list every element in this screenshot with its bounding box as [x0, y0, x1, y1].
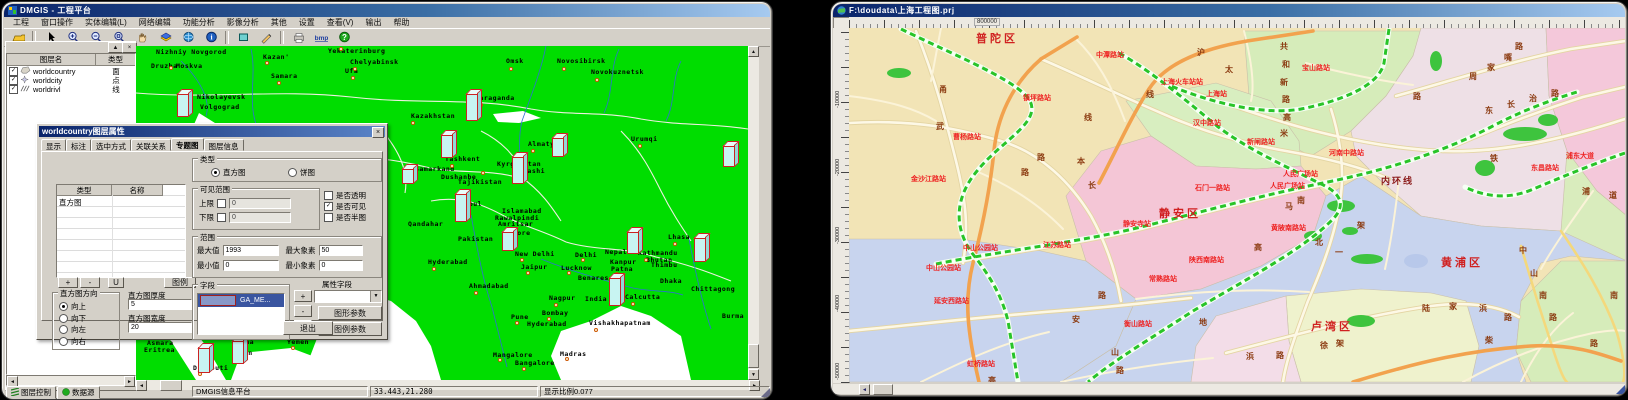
min-label: 最小值	[197, 260, 220, 271]
city-label: Almaty	[528, 140, 554, 148]
map-doc-icon	[837, 6, 846, 15]
road-name-char: 周	[1469, 71, 1477, 82]
district-label: 静安区	[1159, 205, 1201, 221]
district-label: 黄浦区	[1441, 254, 1483, 270]
help-button[interactable]: ?	[333, 29, 355, 46]
exit-button[interactable]: 退出	[283, 321, 333, 335]
scroll-left-icon[interactable]: ◄	[859, 384, 870, 395]
export-bmp-button[interactable]: bmp	[310, 29, 332, 46]
city-label: Kazakhstan	[411, 112, 455, 120]
ruler-position-label: 800000	[974, 18, 1000, 26]
scroll-up-icon[interactable]: ▲	[748, 46, 759, 57]
ring-road-label: 内环线	[1381, 174, 1414, 187]
layer-name: worldcountry	[33, 67, 97, 76]
road-name-char: 浜	[1479, 303, 1487, 314]
ruler-value-label: -40000	[835, 295, 841, 312]
dialog-tab-标注[interactable]: 标注	[66, 139, 91, 151]
histogram-bar[interactable]	[232, 340, 244, 364]
histogram-bar[interactable]	[609, 277, 621, 306]
city-marker[interactable]	[595, 78, 599, 82]
upper-limit-checkbox[interactable]	[217, 199, 226, 208]
city-label: Hyderabad	[428, 258, 468, 266]
panel-minimize-button[interactable]: ▲	[108, 42, 123, 53]
city-label: Nepal	[605, 248, 627, 256]
city-label: Samara	[271, 72, 297, 80]
city-label: Patna	[611, 265, 633, 273]
right-titlebar[interactable]: F:\doudata\上海工程图.prj	[833, 4, 1625, 17]
direction-group: 直方图方向 向上向下向左向右	[52, 292, 120, 350]
road-name-char: 架	[1357, 220, 1365, 231]
city-marker[interactable]	[673, 242, 677, 246]
menu-item-网络编辑[interactable]: 网络编辑	[134, 17, 176, 28]
max-label: 最大值	[197, 245, 220, 256]
station-label: 江苏路站	[1043, 240, 1071, 250]
lower-limit-checkbox[interactable]	[217, 213, 226, 222]
station-label: 金沙江路站	[911, 174, 946, 184]
city-marker[interactable]	[498, 358, 502, 362]
road-name-char: 路	[1021, 167, 1029, 178]
radio-icon	[59, 302, 68, 311]
city-marker[interactable]	[411, 121, 415, 125]
dialog-tab-专题图[interactable]: 专题图	[171, 138, 204, 150]
radio-pie[interactable]: 饼图	[288, 167, 315, 178]
city-marker[interactable]	[520, 258, 524, 262]
road-name-char: 共	[1280, 41, 1288, 52]
road-name-char: 东	[1485, 105, 1493, 116]
left-menubar: 工程窗口操作实体编辑(L)网络编辑功能分析影像分析其他设置查看(V)输出帮助	[4, 17, 770, 28]
ruler-value-label: -20000	[835, 159, 841, 176]
menu-item-查看(V)[interactable]: 查看(V)	[322, 17, 359, 28]
export-bmp-icon: bmp	[315, 31, 328, 44]
road-name-char: 路	[1413, 91, 1421, 102]
station-label: 中山公园站	[963, 243, 998, 253]
road-name-char: 甬	[939, 84, 947, 95]
ruler-value-label: -30000	[835, 227, 841, 244]
upper-limit-field[interactable]: 0	[229, 198, 291, 209]
city-marker[interactable]	[638, 144, 642, 148]
ruler-value-label: -10000	[835, 91, 841, 108]
road-name-char: 架	[1336, 338, 1344, 349]
radio-icon	[59, 337, 68, 346]
city-label: Nikolayevsk	[197, 93, 246, 101]
city-marker[interactable]	[277, 81, 281, 85]
road-name-char: 路	[1549, 312, 1557, 323]
city-label: Qandahar	[408, 220, 443, 228]
city-label: Nagpur	[549, 294, 575, 302]
city-label: Jaipur	[521, 263, 547, 271]
histogram-bar[interactable]	[502, 231, 514, 251]
refresh-globe-button[interactable]	[177, 29, 199, 46]
dialog-close-icon[interactable]: ×	[372, 127, 384, 138]
histogram-bar[interactable]	[177, 93, 189, 117]
city-label: Samarkand	[415, 165, 455, 173]
station-label: 镇坪路站	[1023, 93, 1051, 103]
histogram-bar[interactable]	[723, 145, 735, 167]
road-name-char: 南	[1297, 195, 1305, 206]
district-label: 普陀区	[976, 30, 1018, 46]
road-name-char: 地	[1199, 317, 1207, 328]
table-row[interactable]: 直方图	[59, 197, 82, 208]
road-name-char: 长	[1088, 180, 1096, 191]
dialog-tab-图层信息[interactable]: 图层信息	[204, 139, 244, 151]
road-name-char: 一	[1335, 247, 1343, 258]
road-name-char: 嘴	[1504, 52, 1512, 63]
road-name-char: 武	[936, 121, 944, 132]
road-name-char: 中	[1519, 245, 1527, 256]
station-label: 衡山路站	[1124, 319, 1152, 329]
city-label: Lhasa	[668, 233, 690, 241]
city-label: New Delhi	[515, 250, 555, 258]
station-label: 中山公园站	[926, 263, 961, 273]
city-marker[interactable]	[547, 317, 551, 321]
radio-direction-向右[interactable]: 向右	[59, 336, 86, 347]
road-name-char: 徐	[1320, 340, 1328, 351]
city-marker[interactable]	[169, 66, 173, 70]
thickness-field[interactable]: 5	[128, 299, 192, 310]
city-marker[interactable]	[554, 303, 558, 307]
toolbar-separator	[280, 31, 284, 44]
dialog-tabs: 显示标注选中方式关联关系专题图图层信息	[41, 139, 244, 151]
left-titlebar[interactable]: DMGIS - 工程平台	[4, 4, 770, 17]
field-add-button[interactable]: +	[294, 290, 312, 302]
status-scale: 显示比例0.077	[540, 386, 770, 397]
max-value-field[interactable]: 1993	[223, 245, 279, 256]
dmgis-window: DMGIS - 工程平台 工程窗口操作实体编辑(L)网络编辑功能分析影像分析其他…	[1, 1, 773, 400]
road-name-char: 道	[1609, 190, 1617, 201]
station-label: 石门一路站	[1195, 183, 1230, 193]
city-marker[interactable]	[644, 258, 648, 262]
line-layer-icon	[20, 84, 31, 95]
road-name-char: 高	[1254, 242, 1262, 253]
city-label: Yekaterinburg	[328, 47, 385, 55]
station-label: 人民广场站	[1283, 169, 1318, 179]
shanghai-map-window: F:\doudata\上海工程图.prj 800000 -10000-20000…	[830, 1, 1628, 397]
road-name-char: 家	[1487, 62, 1495, 73]
road-name-char: 和	[1282, 59, 1290, 70]
city-marker[interactable]	[531, 149, 535, 153]
radio-selected-icon	[211, 168, 220, 177]
station-label: 延安西路站	[934, 296, 969, 306]
window-title: DMGIS - 工程平台	[20, 5, 91, 16]
menu-item-其他[interactable]: 其他	[266, 17, 292, 28]
radio-direction-向左[interactable]: 向左	[59, 324, 86, 335]
selected-field-name: GA_ME...	[240, 297, 270, 304]
station-label: 静安寺站	[1123, 219, 1151, 229]
station-label: 陕西南路站	[1189, 255, 1224, 265]
layer-type: 线	[99, 84, 133, 95]
measure-pencil-button[interactable]	[255, 29, 277, 46]
left-ruler: -10000-20000-30000-40000-50000	[833, 28, 850, 383]
station-label: 上海火车站站	[1161, 77, 1203, 87]
panel-hscrollbar[interactable]: ◄ ►	[6, 375, 136, 386]
dmgis-app-icon	[8, 6, 17, 15]
road-name-char: 路	[1282, 94, 1290, 105]
layer-checkbox[interactable]: ✓	[9, 76, 18, 85]
city-marker[interactable]	[481, 171, 485, 175]
menu-item-帮助[interactable]: 帮助	[388, 17, 414, 28]
remove-theme-button[interactable]: -	[80, 277, 100, 288]
layer-checkbox[interactable]: ✓	[9, 85, 18, 94]
dialog-tab-显示[interactable]: 显示	[41, 139, 66, 151]
city-marker[interactable]	[474, 291, 478, 295]
panel-close-button[interactable]: ×	[122, 42, 137, 53]
svg-text:?: ?	[342, 33, 347, 42]
layer-name: worldcity	[33, 76, 97, 85]
city-marker[interactable]	[594, 328, 598, 332]
type-group: 类型 直方图 饼图	[192, 158, 382, 182]
city-label: Novosibirsk	[557, 57, 606, 65]
info-button[interactable]: i	[200, 29, 222, 46]
road-name-char: 路	[1590, 338, 1598, 349]
road-name-char: 太	[1225, 64, 1233, 75]
vscroll-thumb[interactable]	[748, 344, 759, 368]
histogram-bar[interactable]	[694, 237, 706, 262]
city-label: Eritrea	[144, 346, 175, 354]
field-listbox[interactable]: GA_ME...	[197, 293, 285, 335]
road-name-char: 路	[1276, 350, 1284, 361]
city-marker[interactable]	[631, 302, 635, 306]
min-value-field[interactable]: 0	[223, 260, 279, 271]
city-marker[interactable]	[339, 47, 343, 51]
toolbar-separator	[225, 31, 229, 44]
max-pixel-field[interactable]: 50	[319, 245, 363, 256]
field-group: 字段 GA_ME...	[192, 284, 290, 340]
resize-grip[interactable]	[761, 388, 770, 397]
city-label: Nizhniy Novgorod	[156, 48, 227, 56]
histogram-bar[interactable]	[466, 93, 478, 121]
road-name-char: 铁	[1490, 153, 1498, 164]
station-label: 中潭路站	[1096, 50, 1124, 60]
radio-direction-向下[interactable]: 向下	[59, 313, 86, 324]
status-message: DMGIS信息平台	[192, 386, 368, 397]
menu-item-输出[interactable]: 输出	[360, 17, 386, 28]
update-theme-button[interactable]: U	[108, 277, 124, 288]
table-header-type: 类型	[57, 185, 112, 196]
layer-type-header: 类型	[96, 54, 135, 65]
menu-item-影像分析[interactable]: 影像分析	[222, 17, 264, 28]
left-statusbar: DMGIS信息平台 33.443,21.280 显示比例0.077	[4, 386, 770, 397]
resize-grip[interactable]	[1616, 385, 1625, 394]
histogram-bar[interactable]	[441, 134, 453, 158]
city-marker[interactable]	[353, 67, 357, 71]
road-name-char: 线	[1084, 112, 1092, 123]
measure-pencil-icon	[260, 31, 273, 44]
attr-field-dropdown[interactable]: ▼	[314, 290, 382, 303]
road-name-char: 路	[1116, 365, 1124, 376]
road-name-char: 本	[1077, 156, 1085, 167]
road-name-char: 柴	[1485, 335, 1493, 346]
city-marker[interactable]	[526, 271, 530, 275]
shanghai-map-view[interactable]: 普陀区静安区黄浦区卢湾区内环线中潭路站上海火车站站上海站镇坪路站曹杨路站金沙江路…	[849, 28, 1625, 382]
station-label: 常熟路站	[1149, 274, 1177, 284]
city-label: Kazan'	[263, 53, 289, 61]
road-name-char: 安	[1072, 314, 1080, 325]
select-rect-icon	[237, 31, 250, 44]
chevron-down-icon[interactable]: ▼	[370, 291, 381, 302]
lower-limit-label: 下限	[199, 212, 214, 223]
city-label: Hyderabad	[527, 320, 567, 328]
checkbox-是否半图[interactable]: 是否半图	[324, 212, 366, 223]
radio-icon	[288, 168, 297, 177]
checkbox-icon	[324, 191, 333, 200]
city-label: Lucknow	[561, 264, 592, 272]
road-name-char: 治	[1529, 93, 1537, 104]
city-marker[interactable]	[567, 271, 571, 275]
city-label: Chittagong	[691, 285, 735, 293]
menu-item-工程[interactable]: 工程	[8, 17, 34, 28]
menu-item-功能分析[interactable]: 功能分析	[178, 17, 220, 28]
layer-list-header: 图层名 类型	[7, 54, 135, 66]
station-label: 东昌路站	[1531, 163, 1559, 173]
road-name-char: 高	[988, 375, 996, 382]
field-remove-button[interactable]: -	[294, 305, 312, 317]
map-vscrollbar[interactable]: ▲ ▼	[748, 46, 759, 380]
radio-direction-向上[interactable]: 向上	[59, 301, 86, 312]
dialog-tab-选中方式[interactable]: 选中方式	[91, 139, 131, 151]
radio-histogram[interactable]: 直方图	[211, 167, 246, 178]
radio-icon	[59, 325, 68, 334]
menu-item-窗口操作[interactable]: 窗口操作	[36, 17, 78, 28]
road-name-char: 马	[1285, 201, 1293, 212]
scroll-down-icon[interactable]: ▼	[748, 369, 759, 380]
district-label: 卢湾区	[1311, 318, 1353, 334]
lower-limit-field[interactable]: 0	[229, 212, 291, 223]
city-label: Moskva	[176, 62, 202, 70]
city-marker[interactable]	[522, 367, 526, 371]
city-label: Vishakhapatnam	[589, 319, 651, 327]
add-theme-button[interactable]: +	[58, 277, 78, 288]
city-label: Novokuznetsk	[591, 68, 644, 76]
min-pixel-field[interactable]: 0	[319, 260, 363, 271]
station-label: 上海站	[1206, 89, 1227, 99]
field-color-swatch	[200, 295, 236, 306]
pan-hand-icon	[136, 31, 149, 44]
svg-text:i: i	[210, 33, 212, 42]
select-rect-button[interactable]	[232, 29, 254, 46]
menu-item-设置[interactable]: 设置	[294, 17, 320, 28]
theme-type-table[interactable]: 类型 名称 直方图	[56, 184, 186, 278]
city-label: Volgograd	[200, 103, 240, 111]
graphic-params-button[interactable]: 图形参数	[318, 306, 382, 320]
layer-properties-dialog: worldcountry图层属性 × 显示标注选中方式关联关系专题图图层信息 类…	[36, 123, 388, 340]
checkbox-是否可见[interactable]: ✓是否可见	[324, 201, 366, 212]
city-label: India	[585, 295, 607, 303]
road-name-char: 米	[1280, 128, 1288, 139]
road-name-char: 南	[1610, 290, 1618, 301]
checkbox-是否透明[interactable]: 是否透明	[324, 190, 366, 201]
city-marker[interactable]	[291, 346, 295, 350]
layers-flag-icon	[159, 31, 172, 44]
road-name-char: 路	[1504, 312, 1512, 323]
attr-field-label: 属性字段	[322, 279, 352, 290]
upper-limit-label: 上限	[199, 198, 214, 209]
city-label: Calcutta	[625, 293, 660, 301]
city-marker[interactable]	[515, 321, 519, 325]
range-group: 范围 最大值 1993 最大象素 50 最小值 0 最小象素 0	[192, 236, 382, 278]
dialog-titlebar[interactable]: worldcountry图层属性	[39, 126, 385, 137]
road-name-char: 路	[1515, 41, 1523, 52]
window-title: F:\doudata\上海工程图.prj	[849, 5, 955, 16]
city-label: Omsk	[506, 57, 524, 65]
road-name-char: 家	[1449, 301, 1457, 312]
road-name-char: 浜	[1246, 351, 1254, 362]
city-marker[interactable]	[265, 61, 269, 65]
road-name-char: 沪	[1197, 47, 1205, 58]
hscroll-thumb[interactable]	[873, 384, 893, 395]
checkbox-icon: ✓	[324, 202, 333, 211]
station-label: 浦东大道	[1566, 151, 1594, 161]
histogram-bar[interactable]	[402, 168, 414, 184]
city-marker[interactable]	[351, 76, 355, 80]
city-label: Chelyabinsk	[350, 58, 399, 66]
city-label: Burma	[722, 312, 744, 320]
station-label: 人民广场站	[1270, 181, 1305, 191]
city-label: Dhaka	[660, 277, 682, 285]
city-label: Tajikistan	[458, 178, 502, 186]
station-label: 曹杨路站	[953, 132, 981, 142]
road-name-char: 新	[1280, 77, 1288, 88]
print-icon	[292, 31, 305, 44]
city-marker[interactable]	[450, 164, 454, 168]
city-marker[interactable]	[432, 267, 436, 271]
city-marker[interactable]	[562, 67, 566, 71]
selected-field-row[interactable]: GA_ME...	[198, 294, 284, 307]
layer-name-header: 图层名	[7, 54, 96, 65]
station-label: 黄陂南路站	[1271, 223, 1306, 233]
road-name-char: 线	[1146, 89, 1154, 100]
maxpx-label: 最大象素	[286, 245, 316, 256]
histogram-bar[interactable]	[512, 156, 524, 184]
right-hscrollbar[interactable]: ◄	[833, 384, 1625, 394]
city-marker[interactable]	[565, 357, 569, 361]
station-label: 新闸路站	[1247, 137, 1275, 147]
city-marker[interactable]	[581, 258, 585, 262]
ruler-value-label: -50000	[835, 363, 841, 380]
station-label: 虹桥路站	[967, 359, 995, 369]
city-label: Madras	[560, 350, 586, 358]
histogram-bar[interactable]	[198, 347, 210, 373]
city-label: Delhi	[575, 251, 597, 259]
city-marker[interactable]	[509, 67, 513, 71]
histogram-bar[interactable]	[627, 231, 639, 254]
city-label: Pakistan	[458, 235, 493, 243]
dialog-tab-关联关系[interactable]: 关联关系	[131, 139, 171, 151]
print-button[interactable]	[287, 29, 309, 46]
station-label: 宝山路站	[1302, 63, 1330, 73]
visible-range-group: 可见范围 上限 0 下限 0	[192, 188, 320, 230]
road-name-char: 高	[1283, 112, 1291, 123]
road-name-char: 南	[1539, 290, 1547, 301]
svg-text:bmp: bmp	[315, 35, 328, 42]
city-label: Bangalore	[515, 359, 555, 367]
city-label: Thimbu	[651, 261, 677, 269]
width-field[interactable]: 20	[128, 322, 192, 333]
shanghai-map-label-layer: 普陀区静安区黄浦区卢湾区内环线中潭路站上海火车站站上海站镇坪路站曹杨路站金沙江路…	[849, 28, 1625, 382]
road-name-char: 陆	[1422, 303, 1430, 314]
checkbox-icon	[324, 213, 333, 222]
menu-item-实体编辑(L)[interactable]: 实体编辑(L)	[80, 17, 132, 28]
city-label: Druzba	[151, 62, 177, 70]
refresh-globe-icon	[182, 31, 195, 44]
road-name-char: 长	[1507, 99, 1515, 110]
help-icon: ?	[338, 31, 351, 44]
layers-flag-button[interactable]	[154, 29, 176, 46]
layer-checkbox[interactable]: ✓	[9, 67, 18, 76]
histogram-bar[interactable]	[455, 193, 467, 222]
histogram-bar[interactable]	[552, 137, 564, 157]
layer-row-worldrivl[interactable]: ✓worldrivl线	[9, 85, 133, 94]
status-coordinates: 33.443,21.280	[370, 386, 538, 397]
